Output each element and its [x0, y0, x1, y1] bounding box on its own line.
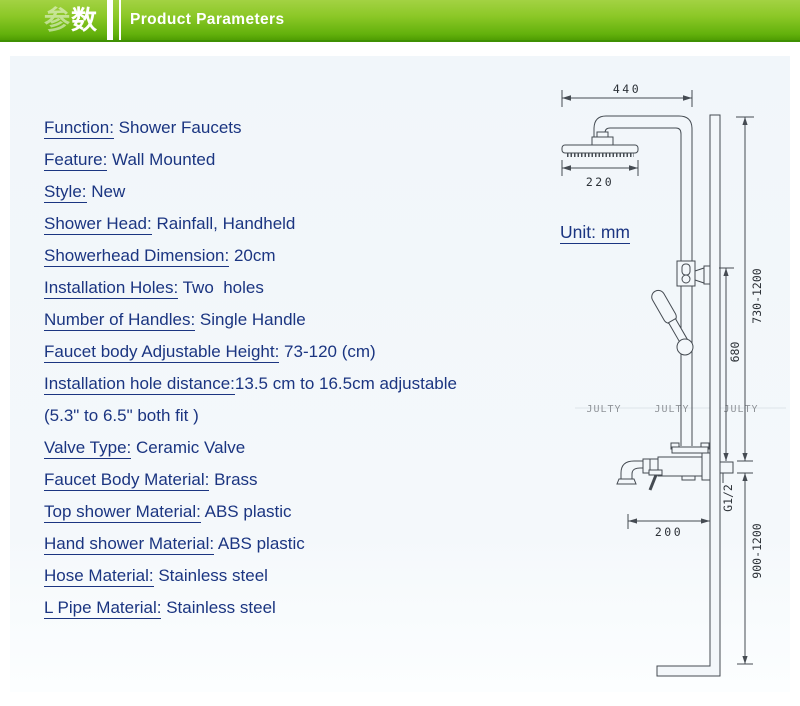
faucet-handle [649, 470, 662, 475]
dim-900-1200-label: 900-1200 [750, 523, 764, 578]
watermark-text: JULTY [723, 404, 758, 415]
dim-220: 220 [562, 160, 638, 189]
dim-440: 440 [562, 82, 692, 107]
dim-440-label: 440 [613, 82, 641, 96]
dim-680-label: 680 [728, 342, 742, 363]
watermark-text: JULTY [586, 404, 621, 415]
dim-680: 680 [719, 268, 742, 461]
hand-shower-ball-joint [677, 339, 693, 355]
dim-220-label: 220 [586, 175, 614, 189]
dim-200-label: 200 [655, 525, 683, 539]
page: 参数 Product Parameters Function: Shower F… [0, 0, 800, 706]
dim-900-1200: 900-1200 [737, 473, 764, 664]
dim-200: 200 [628, 514, 710, 539]
watermark-text: JULTY [654, 404, 689, 415]
thread-callout: G1/2 [720, 462, 735, 512]
rain-shower-head [562, 132, 638, 155]
wall-bar-and-foot [657, 115, 720, 676]
dim-730-1200-label: 730-1200 [750, 268, 764, 323]
spout-lip [617, 479, 636, 484]
hand-shower [649, 288, 693, 355]
faucet-body [617, 443, 710, 490]
faucet-handle-lever [650, 475, 656, 490]
thread-size-label: G1/2 [721, 484, 735, 512]
hand-shower-bracket [677, 261, 710, 286]
technical-drawing: JULTY JULTY JULTY 440 [0, 0, 800, 706]
